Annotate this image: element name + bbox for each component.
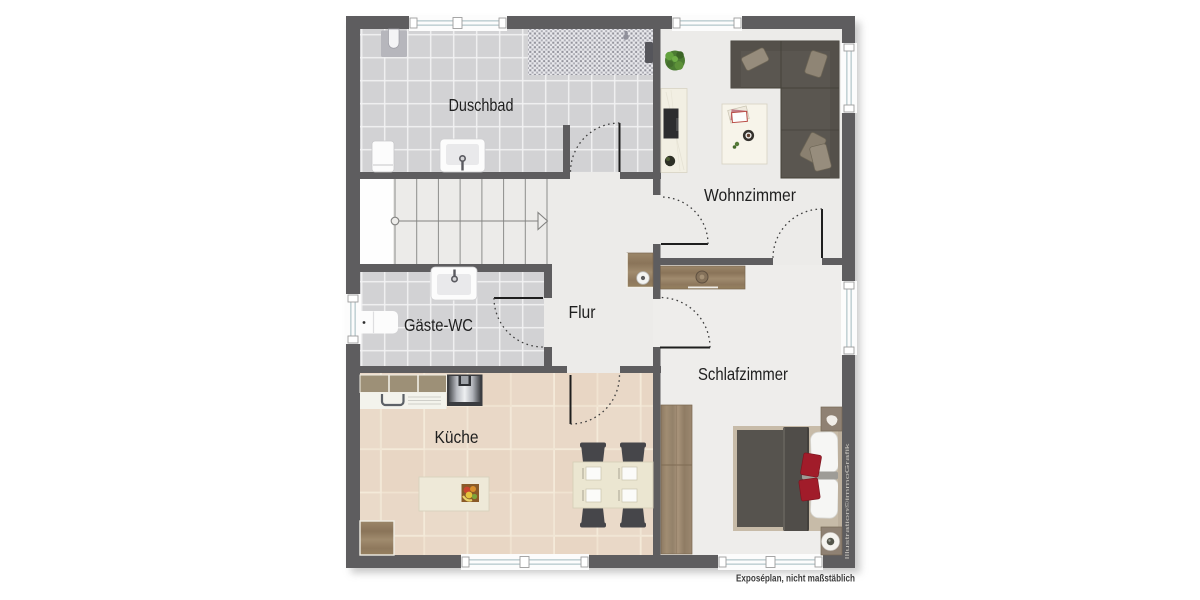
svg-text:Duschbad: Duschbad <box>449 95 514 115</box>
svg-text:Exposéplan, nicht maßstäblich: Exposéplan, nicht maßstäblich <box>736 573 855 585</box>
svg-text:Schlafzimmer: Schlafzimmer <box>698 364 788 384</box>
svg-text:Küche: Küche <box>435 427 479 447</box>
svg-text:Flur: Flur <box>569 302 596 322</box>
svg-text:Gäste-WC: Gäste-WC <box>404 315 473 335</box>
svg-text:Wohnzimmer: Wohnzimmer <box>704 185 796 205</box>
svg-text:Illustration©immoGrafik: Illustration©immoGrafik <box>844 443 851 560</box>
